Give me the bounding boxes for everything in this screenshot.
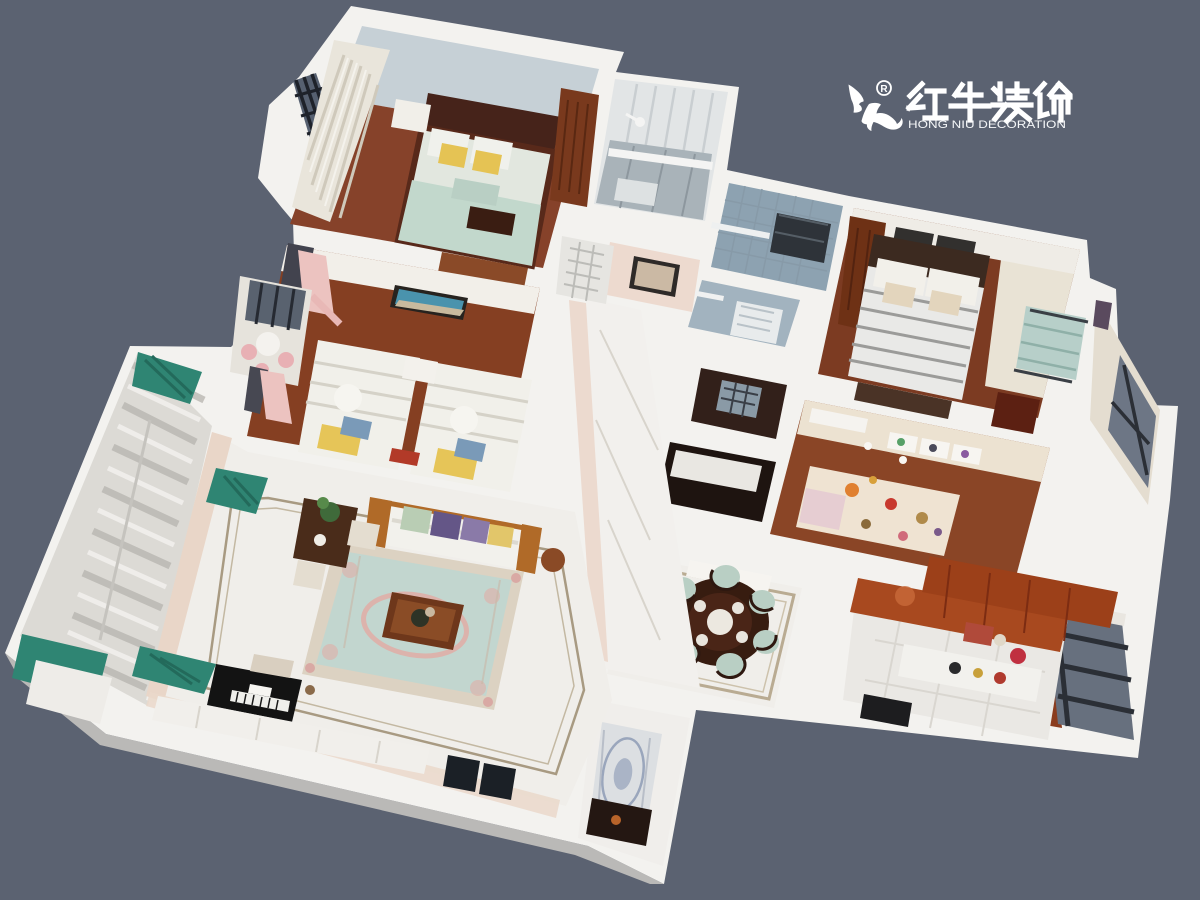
svg-text:R: R [880,84,888,95]
svg-text:HONG NIU DECORATION: HONG NIU DECORATION [908,119,1066,131]
